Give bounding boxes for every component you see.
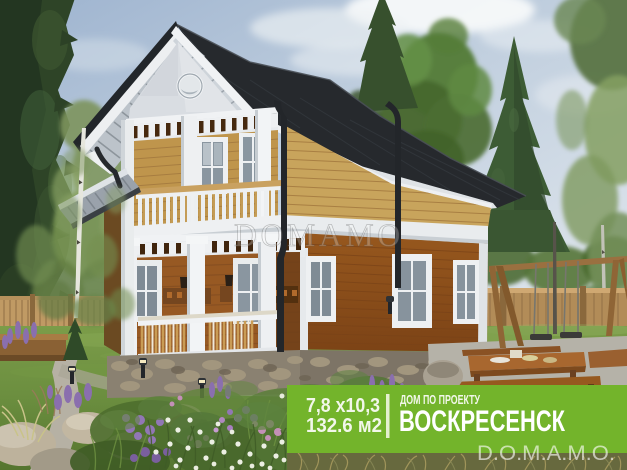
svg-text:DOMAMO: DOMAMO bbox=[234, 218, 404, 254]
svg-text:D.O.M.A.M.O.: D.O.M.A.M.O. bbox=[477, 442, 615, 465]
svg-text:ВОСКРЕСЕНСК: ВОСКРЕСЕНСК bbox=[399, 405, 565, 438]
svg-text:132.6 м2: 132.6 м2 bbox=[306, 414, 382, 437]
